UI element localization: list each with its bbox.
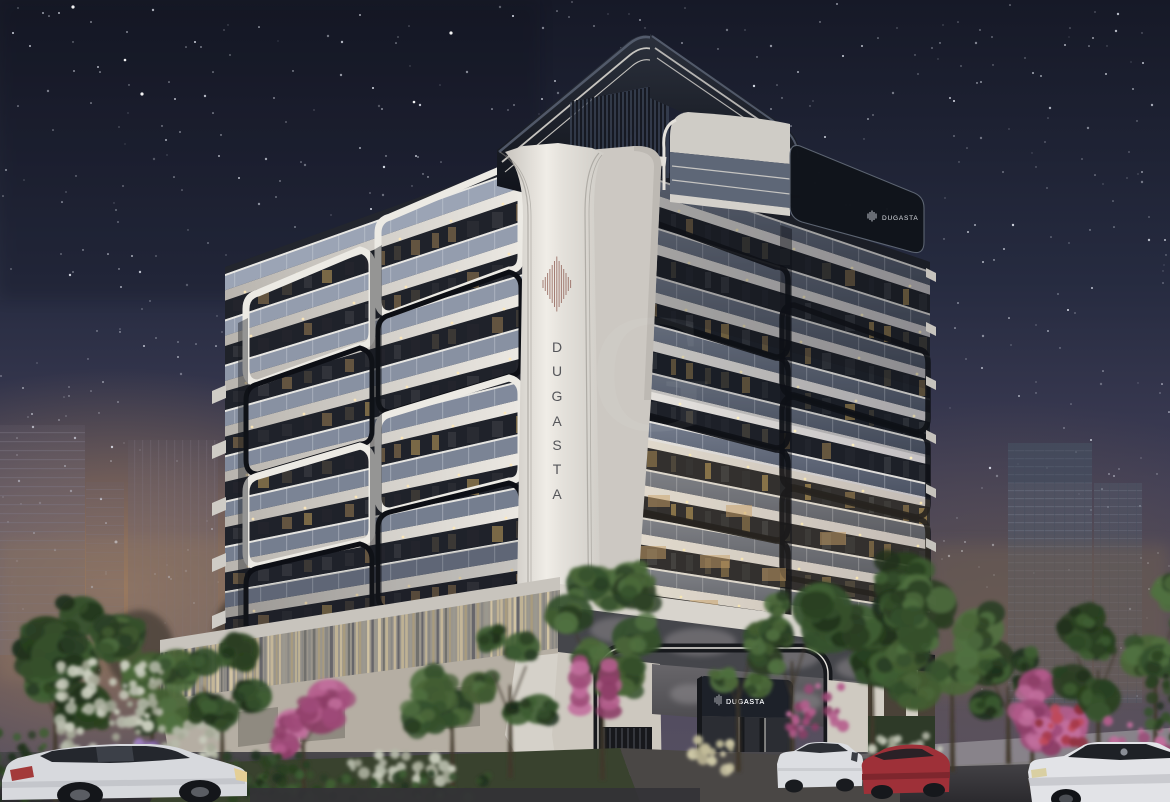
svg-text:G: G xyxy=(590,279,713,467)
svg-text:A: A xyxy=(552,486,562,502)
svg-text:S: S xyxy=(552,437,561,453)
svg-text:T: T xyxy=(553,461,562,477)
svg-text:D: D xyxy=(552,339,562,355)
svg-text:G: G xyxy=(552,388,563,404)
svg-text:U: U xyxy=(552,363,562,379)
svg-text:DUGASTA: DUGASTA xyxy=(882,215,919,222)
svg-text:DUGASTA: DUGASTA xyxy=(726,699,765,706)
svg-text:A: A xyxy=(552,413,562,429)
